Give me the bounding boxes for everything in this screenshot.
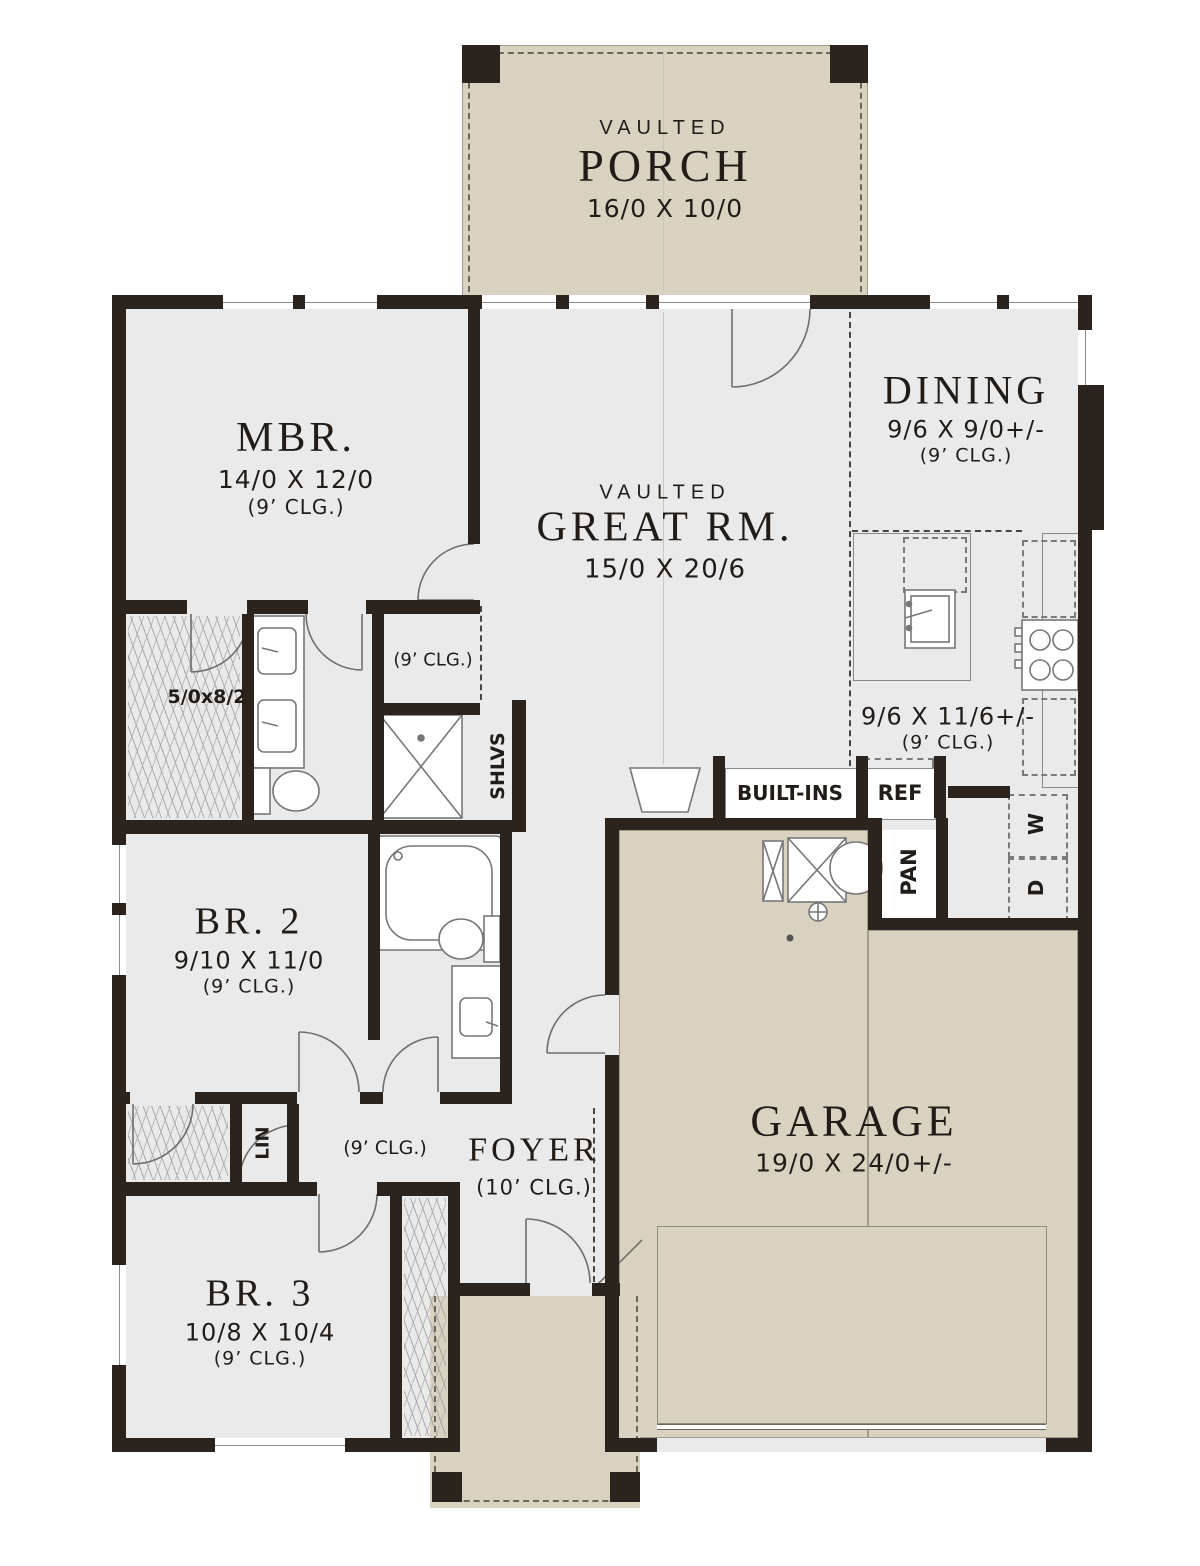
master-bath-east-wall bbox=[372, 614, 384, 820]
porch-tag: VAULTED bbox=[578, 117, 751, 140]
garage-west-wall bbox=[605, 1055, 619, 1438]
porch-post bbox=[462, 45, 500, 83]
br3-window bbox=[112, 1265, 126, 1365]
garage-dims: 19/0 X 24/0+/- bbox=[750, 1148, 957, 1177]
br2-closet-door-swing bbox=[133, 1104, 193, 1164]
window-mullion bbox=[556, 295, 569, 309]
garage-label: GARAGE 19/0 X 24/0+/- bbox=[750, 1099, 957, 1178]
kitchen-ceiling: (9’ CLG.) bbox=[861, 732, 1035, 754]
front-door-opening bbox=[728, 295, 810, 309]
br3-name: BR. 3 bbox=[185, 1275, 336, 1315]
porch-label: VAULTED PORCH 16/0 X 10/0 bbox=[578, 117, 751, 223]
hall-bath-east-wall bbox=[500, 834, 512, 1092]
dining-label: DINING 9/6 X 9/0+/- (9’ CLG.) bbox=[883, 370, 1049, 467]
br2-south-wall bbox=[112, 1092, 130, 1104]
porch-dims: 16/0 X 10/0 bbox=[578, 194, 751, 223]
washer-label: W bbox=[1024, 813, 1048, 835]
shower-north-wall bbox=[372, 703, 480, 715]
mbr-name: MBR. bbox=[218, 417, 374, 461]
window-mullion bbox=[646, 295, 659, 309]
kitchen-label: 9/6 X 11/6+/- (9’ CLG.) bbox=[861, 699, 1035, 754]
mbr-hall-ceiling-label: (9’ CLG.) bbox=[393, 650, 472, 671]
window-mullion bbox=[997, 295, 1009, 309]
br3-north-wall bbox=[112, 1182, 317, 1196]
dryer-label: D bbox=[1024, 880, 1048, 897]
mbr-ceiling: (9’ CLG.) bbox=[218, 495, 374, 519]
suite-south-wall bbox=[112, 820, 512, 834]
great-room-name: GREAT RM. bbox=[537, 507, 794, 551]
ref-divider bbox=[934, 756, 946, 818]
window-mullion bbox=[293, 295, 305, 309]
dining-wall-jog bbox=[1080, 385, 1104, 530]
master-closet-dims-label: 5/0x8/2 bbox=[167, 686, 246, 708]
pantry-label: PAN bbox=[897, 848, 921, 895]
range-cooktop bbox=[1015, 620, 1078, 690]
mbr-label: MBR. 14/0 X 12/0 (9’ CLG.) bbox=[218, 417, 374, 519]
foyer-front-wall bbox=[460, 1283, 530, 1296]
refrigerator-label: REF bbox=[878, 781, 923, 805]
mbr-south-wall bbox=[366, 600, 480, 614]
garage-wall-bottom-left bbox=[605, 1438, 657, 1452]
bathtub bbox=[376, 836, 502, 950]
bench-nook-divider bbox=[713, 756, 725, 818]
master-vanity bbox=[248, 616, 304, 768]
garage-north-wall-right bbox=[868, 918, 1078, 930]
hall-ceiling-label: (9’ CLG.) bbox=[343, 1137, 427, 1159]
br3-north-wall bbox=[377, 1182, 460, 1196]
shelves-east-wall bbox=[512, 700, 526, 832]
foyer-label: FOYER (10’ CLG.) bbox=[468, 1132, 599, 1199]
hall-bath-west-wall bbox=[368, 834, 380, 1040]
porch-name: PORCH bbox=[578, 142, 751, 190]
master-toilet bbox=[252, 768, 319, 814]
stoop-post bbox=[610, 1472, 640, 1502]
mbr-dims: 14/0 X 12/0 bbox=[218, 465, 374, 494]
br3-closet-east-wall bbox=[448, 1196, 460, 1438]
br3-label: BR. 3 10/8 X 10/4 (9’ CLG.) bbox=[185, 1275, 336, 1370]
garage-west-wall bbox=[605, 830, 619, 995]
br2-ceiling: (9’ CLG.) bbox=[174, 975, 325, 997]
built-ins-label: BUILT-INS bbox=[737, 781, 843, 805]
br2-south-wall bbox=[195, 1092, 297, 1104]
great-room-window bbox=[482, 295, 728, 309]
br2-dims: 9/10 X 11/0 bbox=[174, 946, 325, 974]
master-closet-door-swing bbox=[191, 614, 249, 672]
shower bbox=[380, 715, 462, 818]
br2-name: BR. 2 bbox=[174, 903, 325, 943]
dining-dims: 9/6 X 9/0+/- bbox=[883, 415, 1049, 443]
window-mullion bbox=[112, 903, 126, 915]
garage-name: GARAGE bbox=[750, 1099, 957, 1145]
floor-plan: VAULTED PORCH 16/0 X 10/0 MBR. 14/0 X 12… bbox=[0, 0, 1200, 1566]
kitchen-dims: 9/6 X 11/6+/- bbox=[861, 703, 1035, 731]
br2-door-swing bbox=[299, 1032, 359, 1092]
mbr-east-wall bbox=[468, 309, 480, 544]
mbr-door-swing bbox=[418, 544, 474, 600]
master-bath-door-swing bbox=[306, 614, 362, 670]
front-door-swing bbox=[732, 309, 810, 387]
great-room-dims: 15/0 X 20/6 bbox=[537, 554, 794, 584]
great-room-label: VAULTED GREAT RM. 15/0 X 20/6 bbox=[537, 482, 794, 585]
dining-side-window bbox=[1078, 330, 1092, 385]
pantry-east-wall bbox=[936, 818, 948, 930]
linen-label: LIN bbox=[253, 1126, 274, 1159]
floor-drain bbox=[787, 903, 828, 942]
foyer-ceiling: (10’ CLG.) bbox=[468, 1176, 599, 1200]
br2-south-wall bbox=[360, 1092, 383, 1104]
br3-east-wall bbox=[390, 1196, 402, 1438]
garage-wall-bottom-right bbox=[1046, 1438, 1092, 1452]
pantry-west-wall bbox=[868, 818, 882, 930]
hall-vanity bbox=[452, 966, 502, 1058]
foyer-entry-door-swing bbox=[526, 1219, 642, 1288]
porch-post bbox=[830, 45, 868, 83]
br3-window-bottom bbox=[215, 1438, 345, 1452]
garage-entry-door-swing bbox=[547, 995, 605, 1053]
stoop-post bbox=[432, 1472, 462, 1502]
laundry-stub-wall bbox=[948, 786, 1010, 798]
island-sink bbox=[905, 590, 955, 648]
br3-door-swing bbox=[319, 1194, 377, 1252]
mbr-south-wall bbox=[247, 600, 308, 614]
linen-east-wall bbox=[287, 1104, 299, 1182]
br3-dims: 10/8 X 10/4 bbox=[185, 1318, 336, 1346]
closet-bath-divider bbox=[242, 614, 254, 820]
dining-name: DINING bbox=[883, 370, 1049, 412]
entry-bench bbox=[630, 768, 700, 812]
br2-label: BR. 2 9/10 X 11/0 (9’ CLG.) bbox=[174, 903, 325, 998]
builtins-divider bbox=[856, 756, 868, 818]
br3-ceiling: (9’ CLG.) bbox=[185, 1347, 336, 1369]
mbr-south-wall bbox=[112, 600, 187, 614]
hall-bath-door-swing bbox=[383, 1037, 438, 1092]
foyer-name: FOYER bbox=[468, 1132, 599, 1167]
linen-west-wall bbox=[230, 1104, 242, 1182]
shelves-label: SHLVS bbox=[487, 732, 509, 799]
hall-toilet bbox=[439, 916, 500, 962]
garage-north-wall bbox=[605, 818, 880, 830]
dining-ceiling: (9’ CLG.) bbox=[883, 444, 1049, 466]
great-room-tag: VAULTED bbox=[537, 482, 794, 505]
br2-south-wall bbox=[440, 1092, 512, 1104]
